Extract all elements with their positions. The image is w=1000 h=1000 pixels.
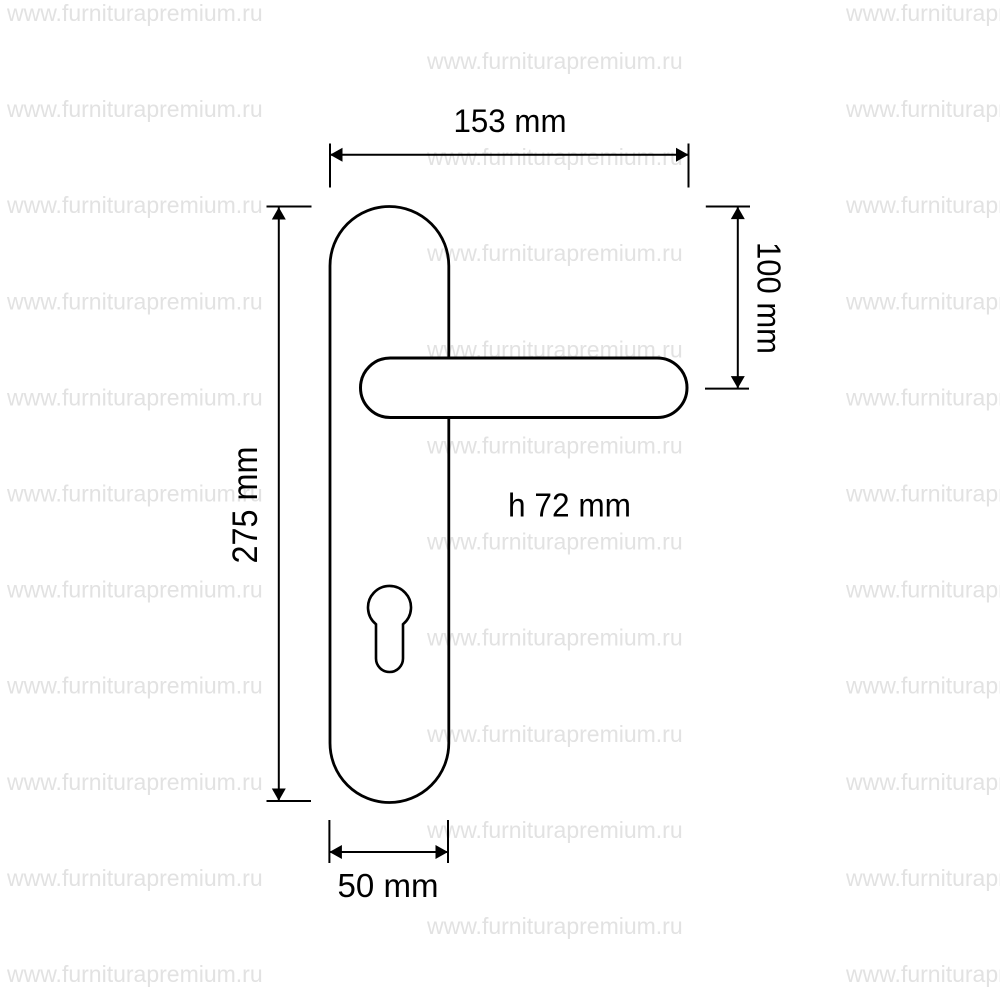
svg-text:www.furniturapremium.ru: www.furniturapremium.ru (426, 48, 683, 74)
svg-text:www.furniturapremium.ru: www.furniturapremium.ru (845, 192, 1000, 218)
svg-text:www.furniturapremium.ru: www.furniturapremium.ru (6, 577, 263, 603)
svg-text:www.furniturapremium.ru: www.furniturapremium.ru (845, 481, 1000, 507)
svg-text:www.furniturapremium.ru: www.furniturapremium.ru (845, 673, 1000, 699)
svg-text:www.furniturapremium.ru: www.furniturapremium.ru (845, 769, 1000, 795)
svg-text:www.furniturapremium.ru: www.furniturapremium.ru (845, 865, 1000, 891)
svg-text:www.furniturapremium.ru: www.furniturapremium.ru (845, 577, 1000, 603)
svg-text:www.furniturapremium.ru: www.furniturapremium.ru (6, 481, 263, 507)
svg-text:www.furniturapremium.ru: www.furniturapremium.ru (6, 288, 263, 314)
svg-text:50 mm: 50 mm (338, 867, 439, 904)
svg-text:www.furniturapremium.ru: www.furniturapremium.ru (845, 384, 1000, 410)
svg-text:www.furniturapremium.ru: www.furniturapremium.ru (426, 240, 683, 266)
svg-text:www.furniturapremium.ru: www.furniturapremium.ru (845, 288, 1000, 314)
svg-text:100 mm: 100 mm (751, 242, 788, 354)
svg-text:www.furniturapremium.ru: www.furniturapremium.ru (426, 625, 683, 651)
svg-text:www.furniturapremium.ru: www.furniturapremium.ru (426, 721, 683, 747)
svg-text:www.furniturapremium.ru: www.furniturapremium.ru (845, 0, 1000, 26)
svg-text:275 mm: 275 mm (226, 447, 265, 564)
svg-text:www.furniturapremium.ru: www.furniturapremium.ru (6, 0, 263, 26)
svg-text:www.furniturapremium.ru: www.furniturapremium.ru (426, 913, 683, 939)
svg-text:www.furniturapremium.ru: www.furniturapremium.ru (426, 817, 683, 843)
svg-text:www.furniturapremium.ru: www.furniturapremium.ru (845, 96, 1000, 122)
svg-text:www.furniturapremium.ru: www.furniturapremium.ru (6, 961, 263, 987)
svg-text:www.furniturapremium.ru: www.furniturapremium.ru (6, 192, 263, 218)
svg-text:www.furniturapremium.ru: www.furniturapremium.ru (426, 144, 683, 170)
svg-text:www.furniturapremium.ru: www.furniturapremium.ru (426, 529, 683, 555)
svg-text:www.furniturapremium.ru: www.furniturapremium.ru (845, 961, 1000, 987)
svg-text:www.furniturapremium.ru: www.furniturapremium.ru (6, 865, 263, 891)
svg-text:www.furniturapremium.ru: www.furniturapremium.ru (6, 96, 263, 122)
svg-text:h 72 mm: h 72 mm (508, 487, 631, 524)
svg-text:www.furniturapremium.ru: www.furniturapremium.ru (6, 673, 263, 699)
svg-text:www.furniturapremium.ru: www.furniturapremium.ru (426, 432, 683, 458)
svg-text:153 mm: 153 mm (454, 103, 567, 139)
svg-text:www.furniturapremium.ru: www.furniturapremium.ru (6, 769, 263, 795)
svg-text:www.furniturapremium.ru: www.furniturapremium.ru (6, 384, 263, 410)
